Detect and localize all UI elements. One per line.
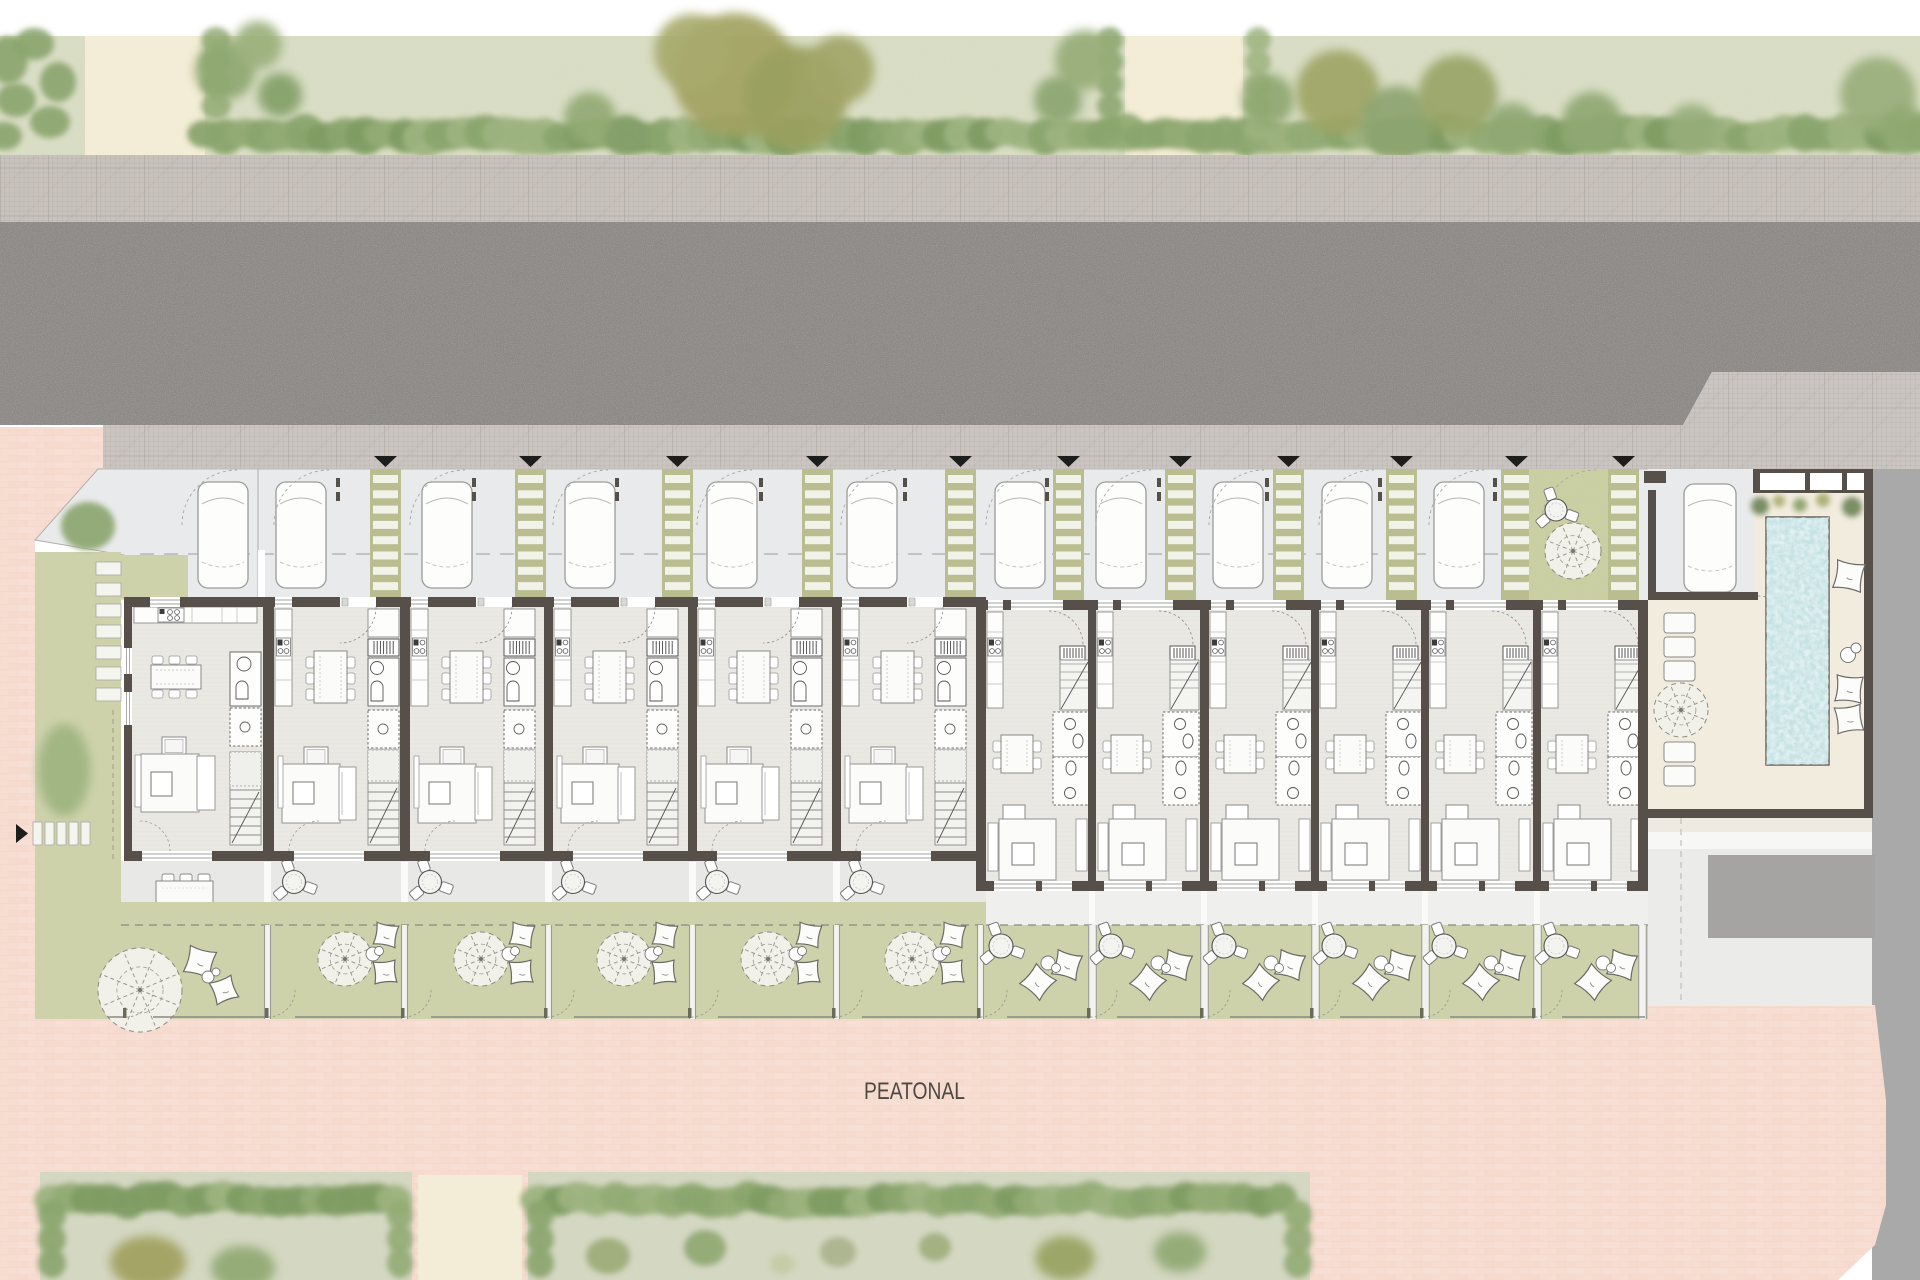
svg-text:PEATONAL: PEATONAL [864,1078,965,1105]
